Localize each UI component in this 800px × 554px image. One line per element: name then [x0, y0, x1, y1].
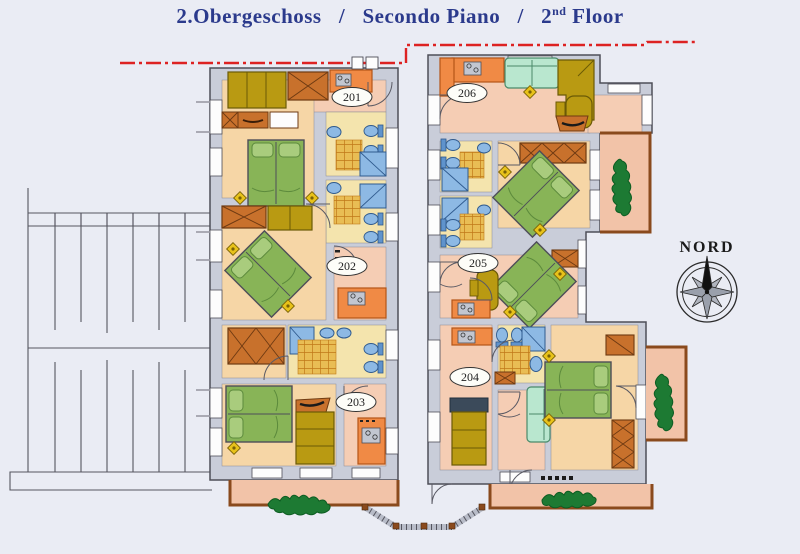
toilet [441, 219, 460, 231]
double-bed [226, 386, 292, 442]
toilet [496, 328, 508, 347]
shower [360, 152, 386, 176]
closet [296, 412, 334, 464]
double-bed [545, 362, 611, 418]
shower [442, 168, 468, 191]
room-label-202: 202 [327, 257, 367, 276]
kitchenette [358, 418, 385, 464]
wardrobe [288, 72, 328, 100]
window-sills [196, 102, 210, 416]
closet [268, 206, 312, 230]
double-bed [248, 140, 304, 206]
boundary-line [120, 42, 696, 63]
room-label-204: 204 [450, 368, 490, 387]
sink [327, 127, 341, 138]
compass-label: NORD [679, 239, 734, 256]
room-label-205: 205 [458, 254, 498, 273]
bath-mat [500, 346, 530, 374]
bathroom-204 [496, 327, 545, 374]
wardrobe [612, 420, 634, 468]
room-206-living-floor [588, 95, 642, 133]
compass: NORD [677, 239, 737, 322]
bidet [511, 328, 523, 347]
room-label-203: 203 [336, 393, 376, 412]
sink [327, 183, 341, 194]
shower [360, 184, 386, 208]
room-number-205: 205 [469, 256, 487, 270]
bath-mat [334, 196, 360, 224]
floorplan-drawing: 201 202 203 204 205 206 NORD [0, 0, 800, 554]
wardrobe [606, 335, 634, 355]
right-terrace [490, 484, 652, 509]
kitchenette [338, 288, 386, 318]
sink [530, 357, 542, 372]
closet [450, 398, 488, 465]
sink [337, 328, 351, 338]
sink [478, 205, 491, 215]
room-label-201: 201 [332, 88, 372, 107]
bench [222, 112, 268, 128]
toilet [441, 139, 460, 151]
wardrobe [228, 328, 284, 364]
chimney-box [352, 57, 363, 69]
bidet [364, 231, 383, 243]
kitchenette [452, 328, 492, 345]
room-label-206: 206 [447, 84, 487, 103]
niche [270, 112, 298, 128]
right-building [428, 55, 652, 504]
adjacent-roof-outline [10, 188, 212, 490]
toilet [364, 125, 383, 137]
room-number-203: 203 [347, 395, 365, 409]
room-number-201: 201 [343, 90, 361, 104]
balcony-upper-right [600, 133, 650, 232]
bath-mat [298, 340, 336, 374]
bay-railing [362, 504, 485, 529]
bidet [441, 157, 460, 169]
floorplan-page: { "title": { "german": "2.Obergeschoss",… [0, 0, 800, 554]
balcony-lower-right [646, 347, 686, 440]
room-number-206: 206 [458, 86, 476, 100]
sink [320, 328, 334, 338]
sink [478, 143, 491, 153]
tv-shelf [296, 398, 330, 412]
toilet [364, 343, 383, 355]
dresser [556, 116, 588, 131]
wardrobe [222, 206, 266, 228]
chimney-box [366, 57, 378, 69]
bath-mat [460, 214, 484, 240]
left-building [196, 57, 398, 500]
kitchenette [452, 300, 490, 318]
room-number-204: 204 [461, 370, 479, 384]
room-number-202: 202 [338, 259, 356, 273]
bath-mat [336, 140, 362, 170]
toilet [364, 213, 383, 225]
bidet [364, 361, 383, 373]
sofa [505, 58, 559, 88]
compass-rose-icon [677, 256, 737, 322]
wardrobe [495, 372, 515, 384]
bidet [441, 235, 460, 247]
closet [228, 72, 286, 108]
